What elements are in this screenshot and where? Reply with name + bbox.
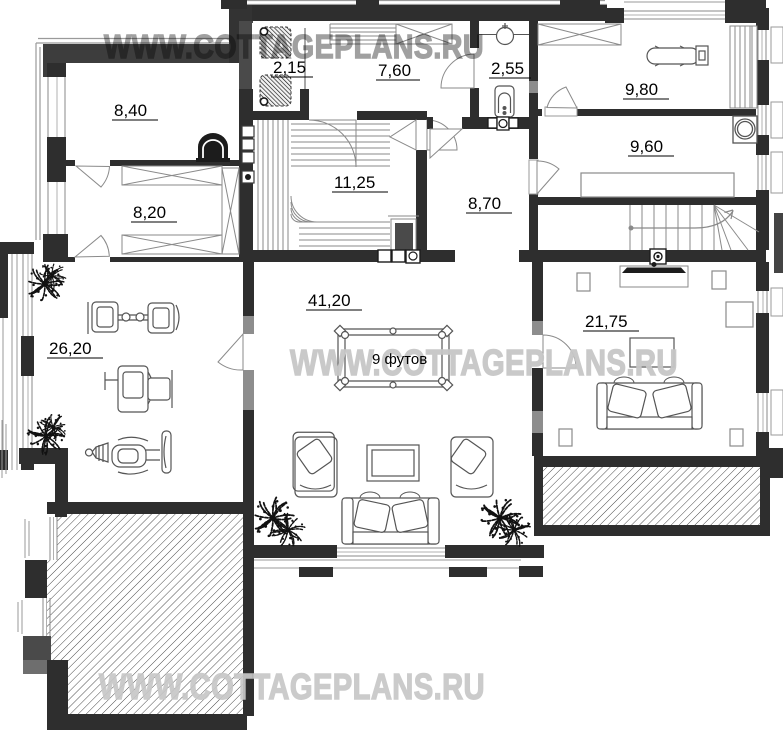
svg-text:41,20: 41,20 xyxy=(308,291,351,310)
svg-text:8,70: 8,70 xyxy=(468,194,501,213)
svg-text:8,40: 8,40 xyxy=(114,101,147,120)
svg-text:21,75: 21,75 xyxy=(585,312,628,331)
svg-text:WWW.COTTAGEPLANS.RU: WWW.COTTAGEPLANS.RU xyxy=(104,28,484,65)
svg-text:11,25: 11,25 xyxy=(334,173,375,192)
svg-text:9 футов: 9 футов xyxy=(372,351,427,368)
svg-text:9,80: 9,80 xyxy=(625,80,658,99)
svg-text:WWW.COTTAGEPLANS.RU: WWW.COTTAGEPLANS.RU xyxy=(290,342,678,383)
svg-text:2,55: 2,55 xyxy=(491,59,524,78)
svg-text:9,60: 9,60 xyxy=(630,137,663,156)
svg-text:8,20: 8,20 xyxy=(133,203,166,222)
svg-text:WWW.COTTAGEPLANS.RU: WWW.COTTAGEPLANS.RU xyxy=(99,666,485,707)
svg-text:26,20: 26,20 xyxy=(49,339,92,358)
